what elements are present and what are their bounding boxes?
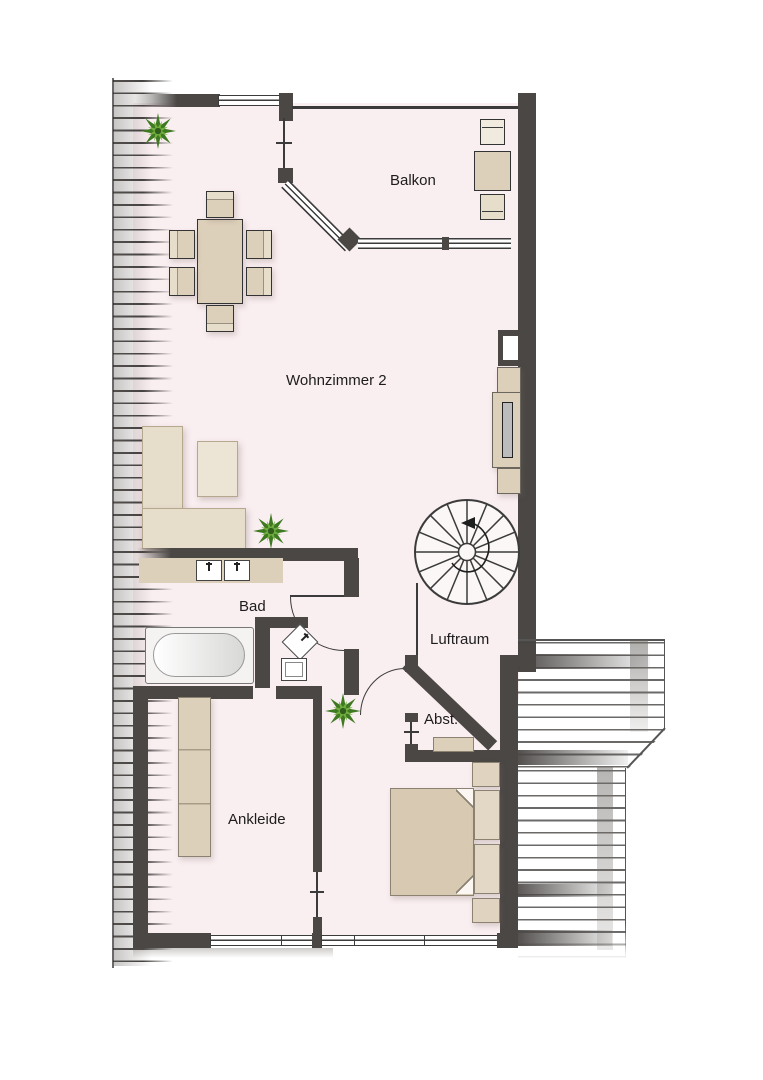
label-abstellraum: Abst.: [424, 711, 458, 728]
plant-hall: [324, 692, 362, 730]
window-bottom-3: [321, 935, 355, 946]
bed-pillow-bottom: [474, 844, 500, 894]
dining-chair-left-2: [169, 267, 195, 296]
wall-bottom-left: [133, 933, 211, 948]
label-bad: Bad: [239, 598, 266, 615]
label-wohnzimmer: Wohnzimmer 2: [286, 372, 387, 389]
dormer-outline-right-lower: [625, 768, 627, 958]
dormer-band-2: [518, 750, 628, 765]
wall-niche-opening: [503, 336, 518, 360]
dormer-vband-1: [630, 640, 648, 732]
dormer-vband-2: [597, 766, 613, 950]
toilet: [281, 658, 307, 681]
plant-top-left: [139, 112, 177, 150]
tv-screen: [502, 402, 513, 458]
dormer-outline-right-upper: [664, 639, 666, 729]
sideboard-bottom: [497, 468, 521, 494]
wall-top: [135, 94, 220, 107]
label-ankleide: Ankleide: [228, 811, 286, 828]
balcony-door-tick: [276, 142, 292, 144]
bed-pillow-top: [474, 790, 500, 840]
wall-bath-right-top: [344, 558, 359, 597]
balcony-chair-1: [480, 119, 505, 145]
bathtub: [145, 627, 254, 684]
nightstand-bottom: [472, 898, 500, 923]
bathtub-basin: [153, 633, 245, 677]
bottom-wall-shadow: [133, 948, 333, 958]
wardrobe: [178, 697, 211, 857]
bed-fold-top: [456, 789, 473, 808]
glazing-horizontal-1: [358, 238, 442, 249]
wall-bottom-right: [497, 933, 518, 948]
sofa-seat: [142, 508, 246, 549]
window-bottom-2: [281, 935, 313, 946]
dining-chair-bottom: [206, 305, 234, 332]
window-bottom-1: [210, 935, 282, 946]
balcony-door-line: [283, 118, 285, 170]
window-bottom-5: [424, 935, 498, 946]
abst-door-tick: [404, 731, 419, 733]
wall-right-lower: [500, 655, 518, 948]
window-top: [218, 95, 280, 106]
abst-door-line: [410, 722, 412, 744]
dining-chair-top: [206, 191, 234, 218]
roof-hatch-right: [518, 638, 668, 963]
plant-living-room: [252, 512, 290, 550]
spiral-staircase: [412, 497, 522, 607]
sofa-side-table: [197, 441, 238, 497]
glazing-divider: [442, 237, 449, 250]
wall-bath-right-bottom: [344, 649, 359, 695]
window-bottom-4: [354, 935, 425, 946]
balcony-chair-2-line: [482, 211, 503, 212]
glazing-post-top: [278, 168, 293, 183]
dining-chair-right-1: [246, 230, 272, 259]
glazing-horizontal-2: [449, 238, 511, 249]
balcony-chair-2: [480, 194, 505, 220]
kitchen-sink-1: [196, 560, 222, 581]
dining-chair-right-2: [246, 267, 272, 296]
balcony-table: [474, 151, 511, 191]
floor-plan: Balkon Wohnzimmer 2 Bad Luftraum Abst. A…: [0, 0, 763, 1080]
kitchen-sink-2: [224, 560, 250, 581]
wall-left-lower: [133, 690, 148, 948]
ankleide-partition-tick: [310, 891, 324, 893]
ankleide-partition-line: [316, 872, 318, 918]
sideboard-top: [497, 367, 521, 393]
abst-shelf: [433, 737, 474, 752]
bed-fold-bottom: [456, 875, 473, 894]
balcony-chair-1-line: [482, 127, 503, 128]
dining-table: [197, 219, 243, 304]
balcony-top-line: [292, 106, 519, 109]
wall-pier-balcony: [279, 93, 293, 121]
nightstand-top: [472, 762, 500, 787]
label-balkon: Balkon: [390, 172, 436, 189]
wall-abst-left-top: [405, 713, 418, 722]
dining-chair-left-1: [169, 230, 195, 259]
label-luftraum: Luftraum: [430, 631, 489, 648]
wall-ankleide-bedroom: [313, 693, 322, 872]
